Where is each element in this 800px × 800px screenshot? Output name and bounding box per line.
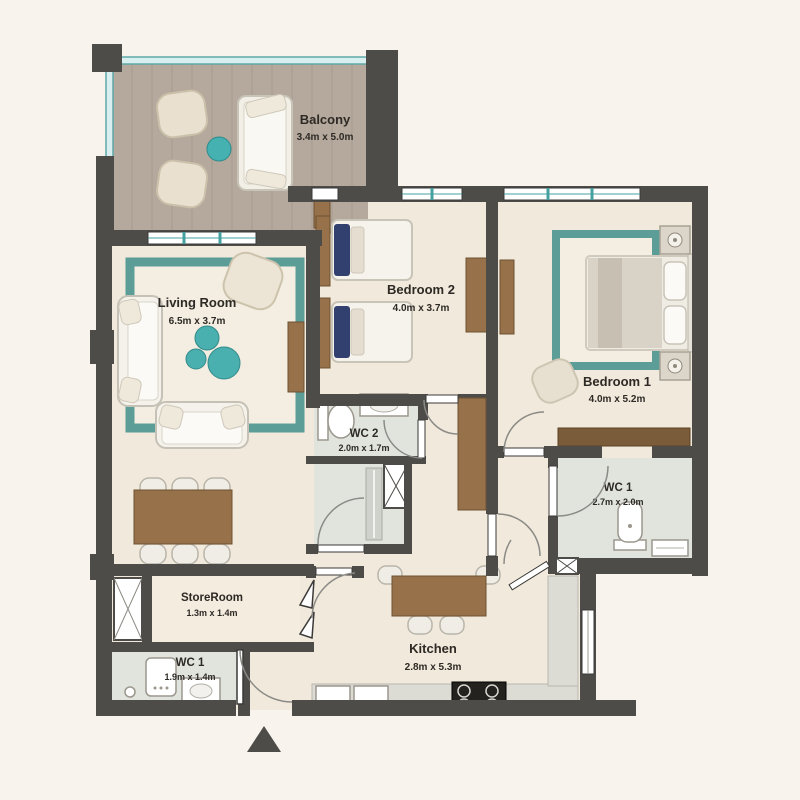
balcony-sofa [238, 93, 292, 190]
balcony-railing-top [106, 57, 372, 64]
kitchen-label: Kitchen [409, 641, 457, 656]
balcony-armchair [155, 89, 209, 139]
wall [96, 700, 236, 716]
wall [548, 516, 558, 560]
pillow [664, 306, 686, 344]
bedroom1-window [504, 188, 640, 200]
storeroom-dims: 1.3m x 1.4m [186, 608, 237, 618]
nightstand [660, 226, 690, 254]
double-bed [586, 254, 693, 352]
chair [140, 544, 166, 564]
pillow [351, 309, 364, 355]
bedroom2-label: Bedroom 2 [387, 282, 455, 297]
pillow-navy [334, 306, 350, 358]
living-sofa-left [118, 296, 162, 406]
nightstand [660, 352, 690, 380]
wardrobe [500, 260, 514, 334]
balcony-dims: 3.4m x 5.0m [297, 132, 354, 143]
service-shaft [556, 558, 578, 574]
living-room-window [148, 232, 256, 244]
wall [486, 194, 498, 514]
chair [172, 544, 198, 564]
floor-plan-canvas: Balcony 3.4m x 5.0m Living Room 6.5m x 3… [0, 0, 800, 800]
wardrobe [466, 258, 488, 332]
coffee-table [186, 349, 206, 369]
wall [692, 194, 708, 576]
wall [578, 558, 708, 574]
chair [440, 616, 464, 634]
kitchen-dims: 2.8m x 5.3m [405, 662, 462, 673]
toilet [318, 402, 354, 440]
living-label: Living Room [158, 295, 237, 310]
chair [204, 544, 230, 564]
tv-cabinet [288, 322, 304, 392]
pillow [664, 262, 686, 300]
sink [652, 540, 688, 556]
coffee-table [195, 326, 219, 350]
wall [92, 44, 122, 72]
wall [404, 462, 412, 546]
hallway-wardrobe [458, 398, 486, 510]
coffee-table [208, 347, 240, 379]
wall [486, 556, 498, 576]
wall [652, 446, 692, 458]
balcony-railing-left [106, 57, 113, 159]
wall [498, 446, 504, 458]
dining-table [134, 490, 232, 544]
balcony-armchair [155, 159, 209, 209]
wc2-label: WC 2 [350, 428, 379, 440]
wc2-dims: 2.0m x 1.7m [338, 443, 389, 453]
wall [96, 642, 314, 652]
balcony-label: Balcony [300, 112, 351, 127]
bedroom1-label: Bedroom 1 [583, 374, 651, 389]
balcony-round-table [207, 137, 231, 161]
wall [142, 576, 152, 642]
wc1-right-label: WC 1 [604, 482, 633, 494]
wall [306, 544, 318, 554]
kitchen-table [392, 576, 486, 616]
living-dims: 6.5m x 3.7m [169, 316, 226, 327]
wc1-right-dims: 2.7m x 2.0m [592, 497, 643, 507]
storeroom-closet [114, 578, 142, 640]
wardrobe-strip [558, 428, 690, 446]
wall [544, 446, 602, 458]
bedroom2-dims: 4.0m x 3.7m [393, 303, 450, 314]
kitchen-counter-right [548, 576, 578, 686]
wall [292, 700, 596, 716]
wall [366, 50, 398, 202]
wall [306, 566, 316, 578]
drain [125, 687, 135, 697]
floor-plan-svg: Balcony 3.4m x 5.0m Living Room 6.5m x 3… [0, 0, 800, 800]
single-bed [316, 216, 412, 286]
wall [96, 564, 314, 576]
dining-set [134, 478, 232, 564]
kitchen-window [582, 610, 594, 674]
wall [96, 156, 114, 242]
storeroom-label: StoreRoom [181, 592, 243, 604]
wc1-left-dims: 1.9m x 1.4m [164, 672, 215, 682]
pillow-navy [334, 224, 350, 276]
living-sofa-bottom [156, 402, 248, 448]
throw-blanket [598, 258, 622, 348]
toilet [614, 502, 646, 550]
pillow [351, 227, 364, 273]
bedroom1-dims: 4.0m x 5.2m [589, 394, 646, 405]
wall [306, 236, 320, 408]
chair [408, 616, 432, 634]
wall [352, 566, 364, 578]
wall [306, 394, 424, 406]
wall [90, 330, 114, 364]
room-balcony: Balcony 3.4m x 5.0m [106, 57, 372, 234]
wc1-left-label: WC 1 [176, 657, 205, 669]
